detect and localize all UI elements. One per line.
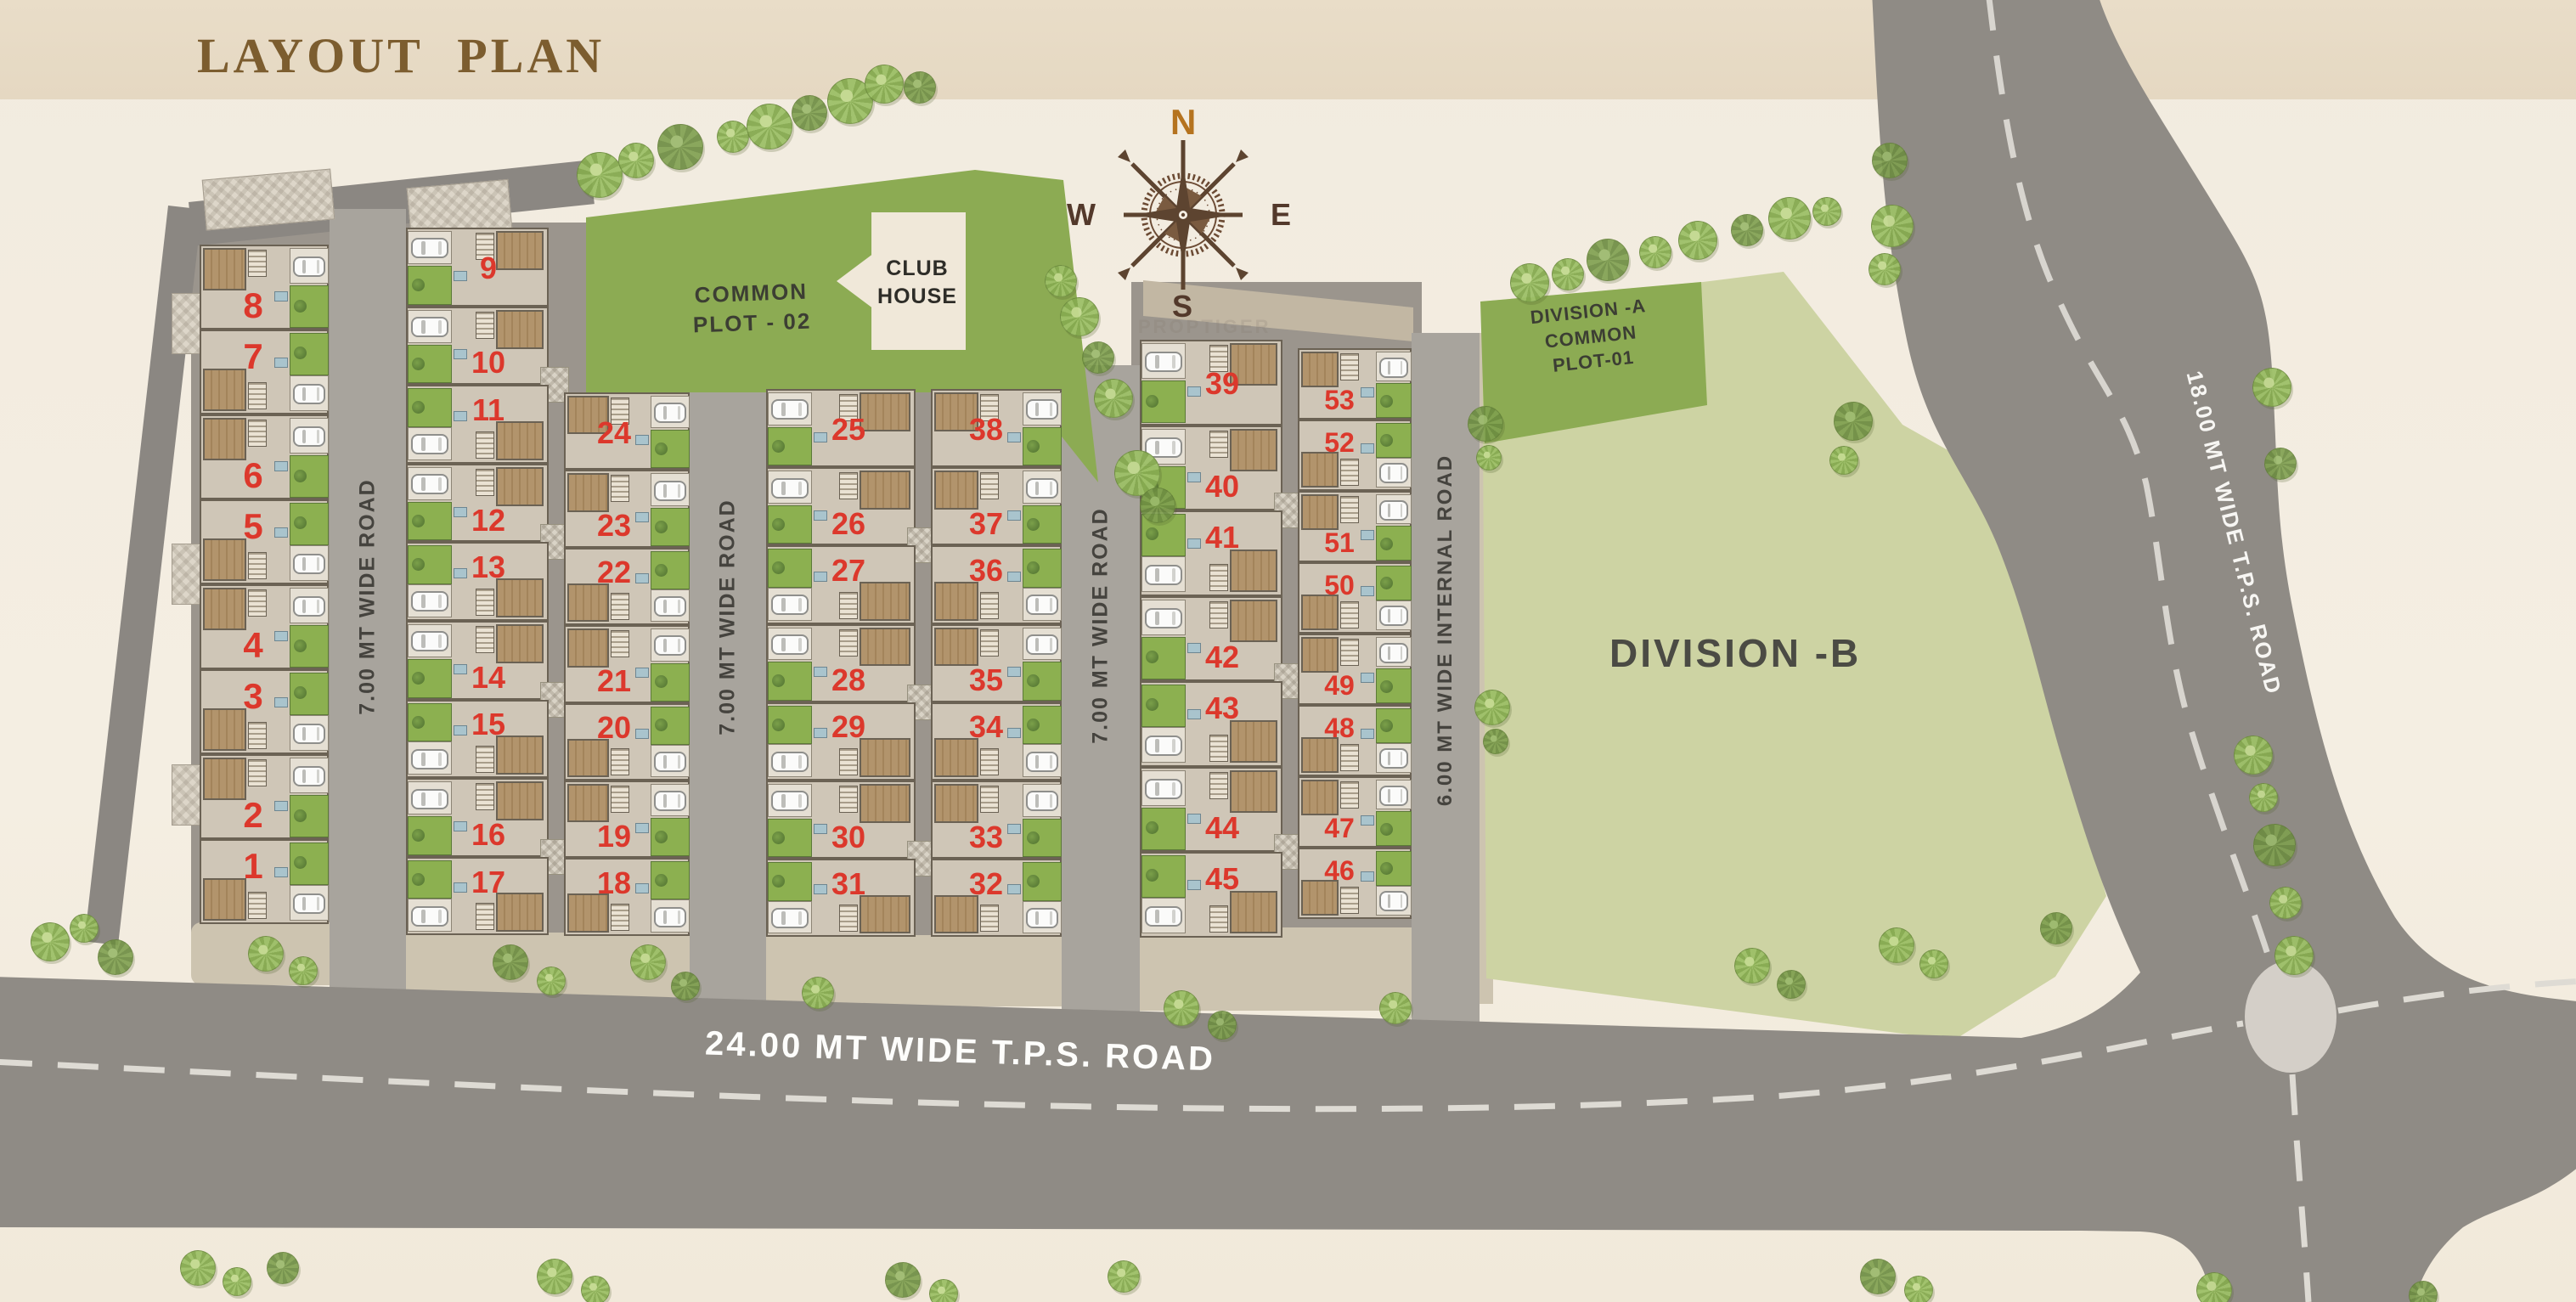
tree-icon [1379, 992, 1412, 1024]
tree-icon [671, 972, 700, 1000]
tree-icon [31, 922, 70, 961]
tree-icon [1208, 1011, 1237, 1040]
tree-icon [1108, 1260, 1140, 1293]
tree-icon [1869, 253, 1901, 285]
tree-icon [248, 936, 284, 972]
tree-icon [1919, 950, 1948, 978]
tree-icon [1140, 488, 1175, 523]
tree-icon [2252, 368, 2291, 407]
tree-icon [1587, 239, 1629, 281]
tree-icon [2409, 1281, 2438, 1302]
tree-icon [70, 914, 99, 943]
tree-icon [267, 1252, 299, 1284]
tree-icon [2249, 783, 2278, 812]
tree-icon [747, 104, 792, 149]
tree-icon [1860, 1259, 1896, 1294]
tree-icon [493, 944, 528, 980]
tree-icon [1468, 406, 1503, 442]
tree-icon [1871, 205, 1914, 247]
tree-icon [1476, 445, 1502, 471]
tree-icon [577, 152, 623, 198]
tree-icon [1082, 341, 1114, 374]
tree-icon [1768, 197, 1811, 240]
tree-icon [581, 1276, 610, 1302]
tree-icon [618, 143, 654, 178]
tree-icon [2253, 824, 2296, 866]
tree-icon [904, 71, 936, 104]
tree-icon [1474, 690, 1510, 725]
tree-icon [929, 1279, 958, 1302]
tree-icon [2040, 912, 2072, 944]
tree-icon [1552, 258, 1584, 290]
tree-icon [1812, 197, 1841, 226]
tree-icon [792, 95, 827, 131]
tree-icon [2274, 936, 2314, 975]
tree-icon [802, 977, 834, 1009]
tree-icon [1164, 990, 1199, 1026]
tree-icon [537, 967, 566, 995]
tree-icon [865, 65, 904, 104]
tree-icon [717, 121, 749, 153]
tree-icon [1094, 379, 1133, 418]
tree-icon [1734, 948, 1770, 984]
tree-icon [657, 124, 703, 170]
tree-icon [2196, 1272, 2232, 1302]
tree-icon [180, 1250, 216, 1286]
tree-icon [1639, 236, 1671, 268]
layout-plan-canvas: LAYOUT PLAN 7.00 MT WIDE ROAD 7.00 MT WI… [0, 0, 2576, 1302]
tree-icon [1510, 263, 1549, 302]
tree-icon [223, 1267, 251, 1296]
tree-icon [98, 939, 133, 975]
tree-icon [289, 956, 318, 985]
trees-layer [0, 0, 2576, 1302]
tree-icon [2234, 736, 2273, 775]
tree-icon [1879, 927, 1914, 963]
tree-icon [1777, 970, 1806, 999]
tree-icon [1834, 402, 1873, 441]
tree-icon [537, 1259, 572, 1294]
tree-icon [1872, 143, 1908, 178]
tree-icon [2269, 887, 2302, 919]
tree-icon [1829, 446, 1858, 475]
tree-icon [2264, 448, 2297, 480]
tree-icon [1904, 1276, 1933, 1302]
tree-icon [885, 1262, 921, 1298]
tree-icon [1731, 214, 1763, 246]
tree-icon [1483, 729, 1508, 754]
tree-icon [1060, 297, 1099, 336]
tree-icon [630, 944, 666, 980]
tree-icon [1045, 265, 1077, 297]
tree-icon [1678, 221, 1717, 260]
